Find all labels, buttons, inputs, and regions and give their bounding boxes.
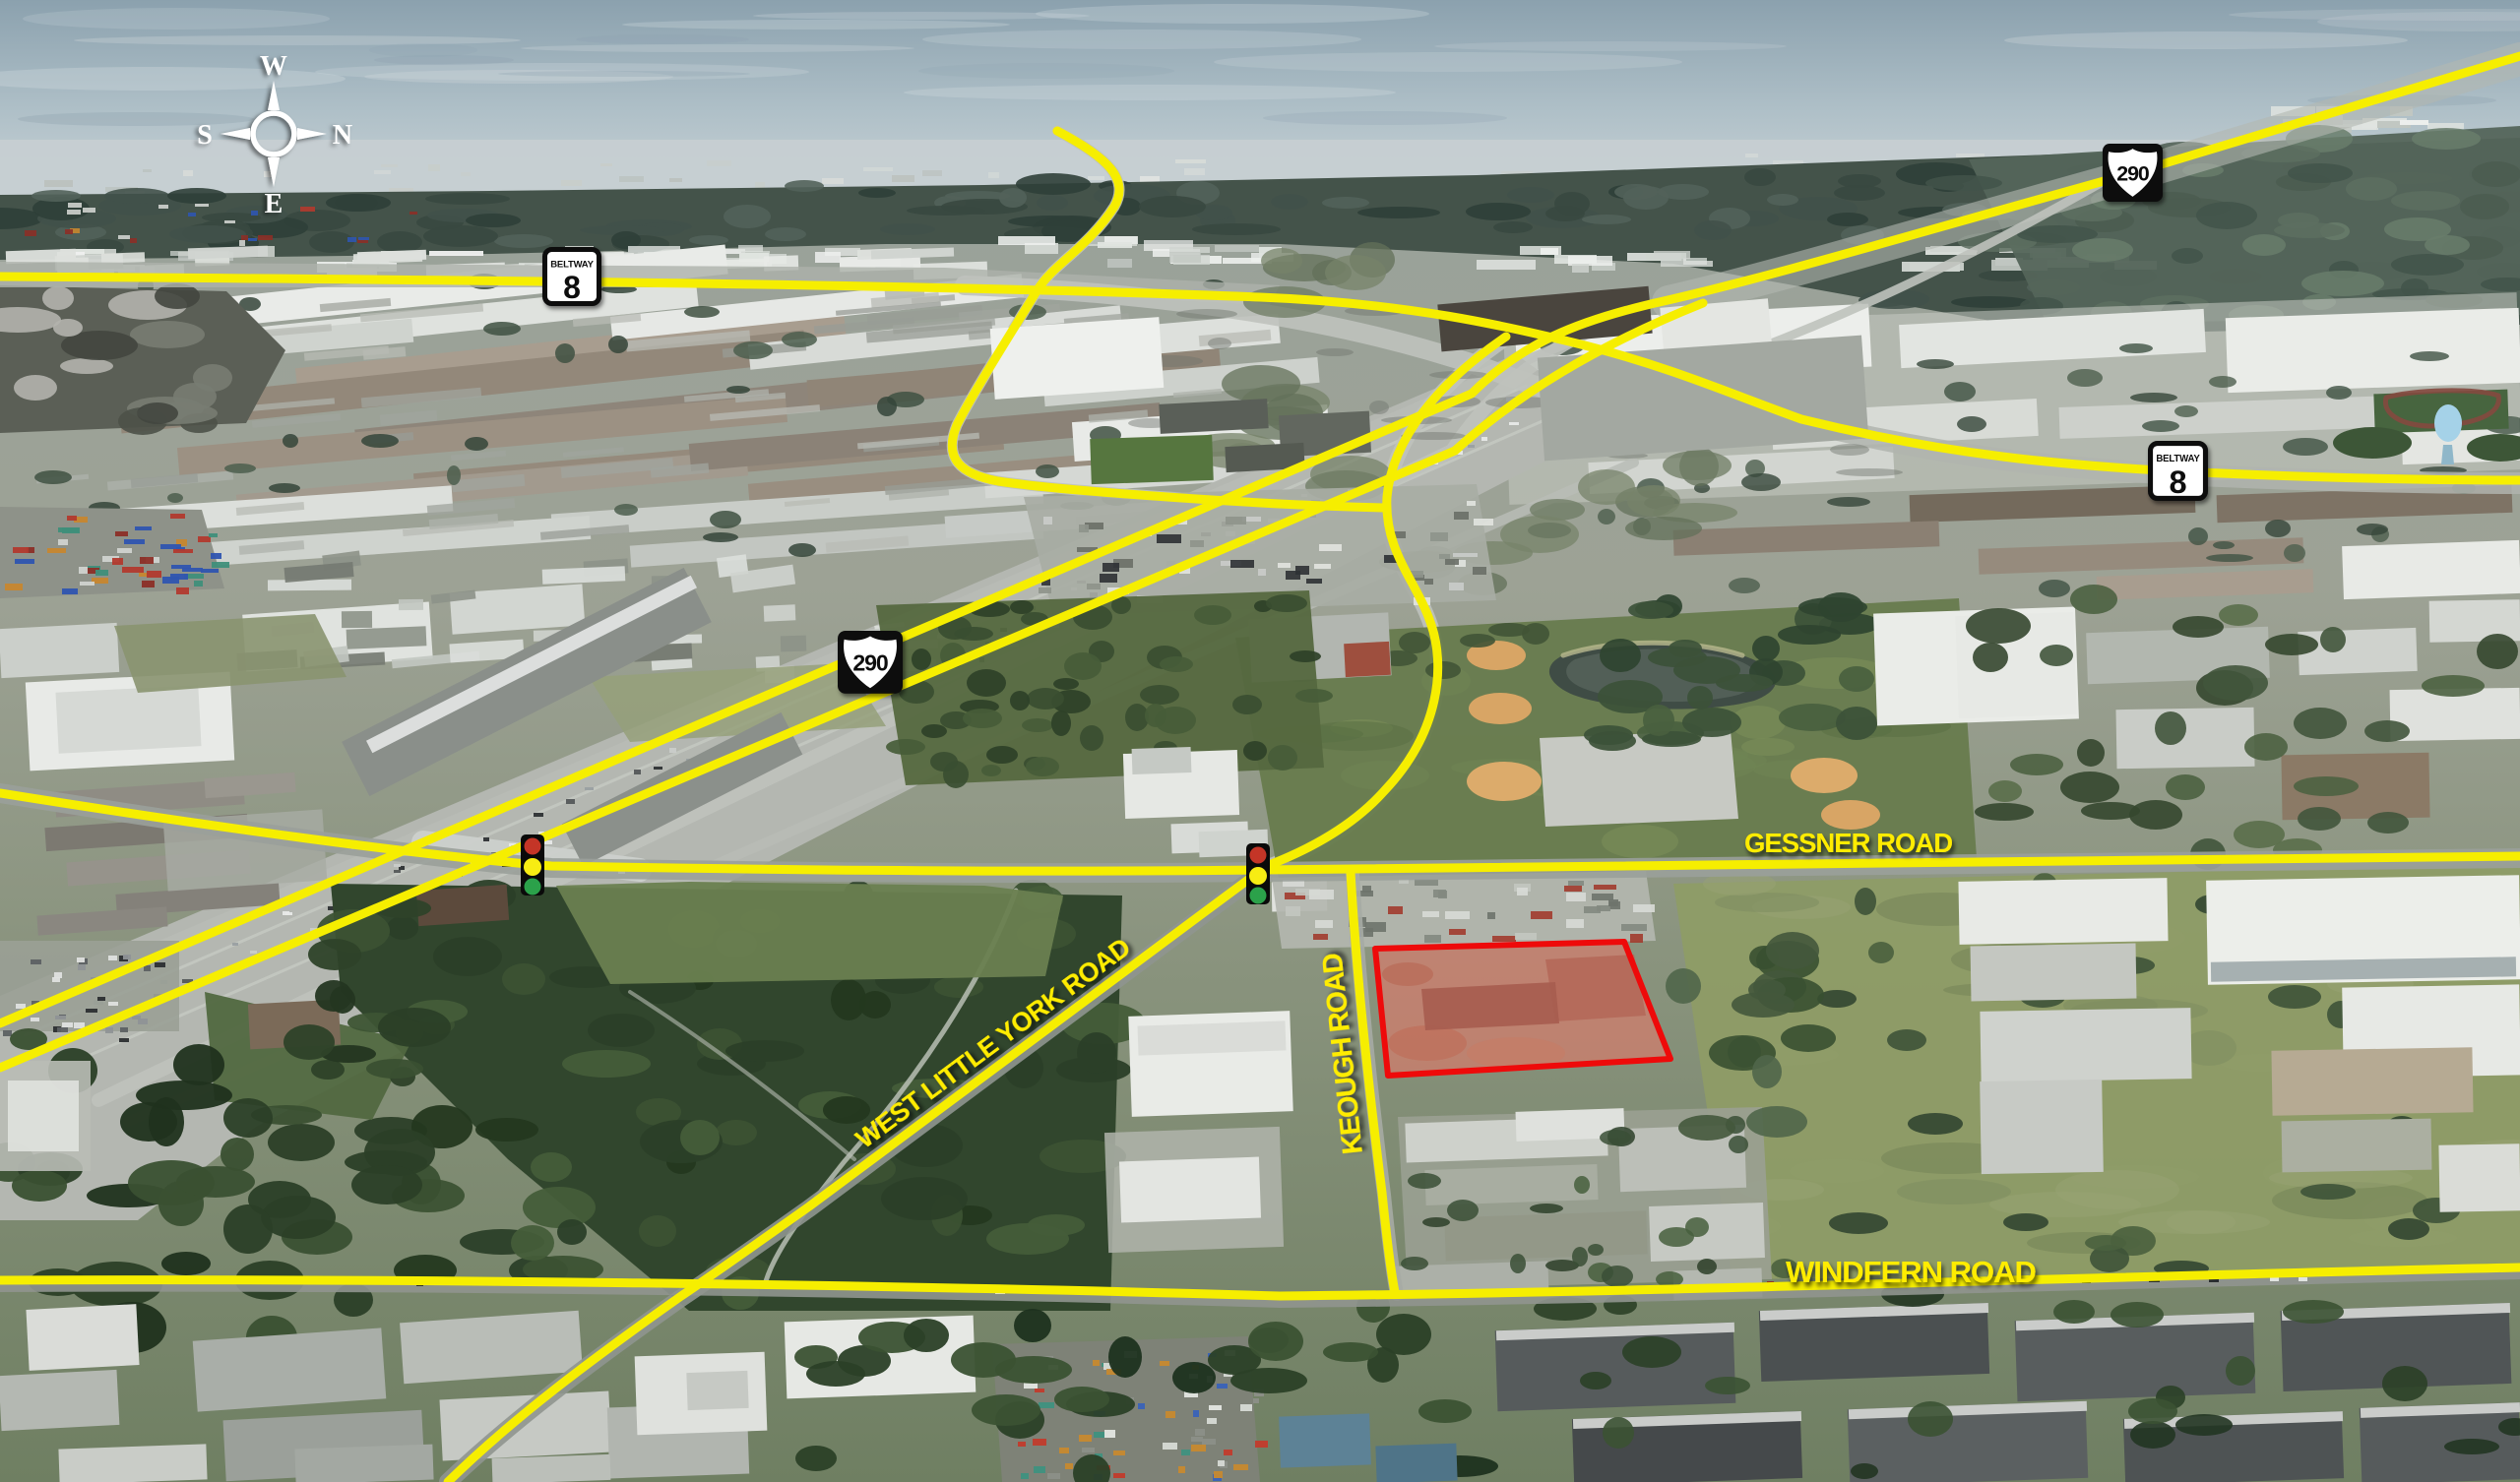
- svg-text:8: 8: [2169, 464, 2186, 500]
- svg-text:S: S: [197, 120, 213, 151]
- svg-text:8: 8: [563, 270, 581, 305]
- svg-text:290: 290: [852, 650, 887, 676]
- svg-text:290: 290: [2116, 162, 2149, 186]
- svg-text:WINDFERN ROAD: WINDFERN ROAD: [1786, 1255, 2037, 1289]
- svg-text:E: E: [265, 189, 283, 219]
- svg-text:W: W: [260, 51, 287, 82]
- svg-text:BELTWAY: BELTWAY: [2156, 454, 2200, 464]
- svg-text:N: N: [333, 120, 352, 151]
- svg-text:GESSNER ROAD: GESSNER ROAD: [1744, 828, 1952, 858]
- svg-text:BELTWAY: BELTWAY: [550, 260, 594, 271]
